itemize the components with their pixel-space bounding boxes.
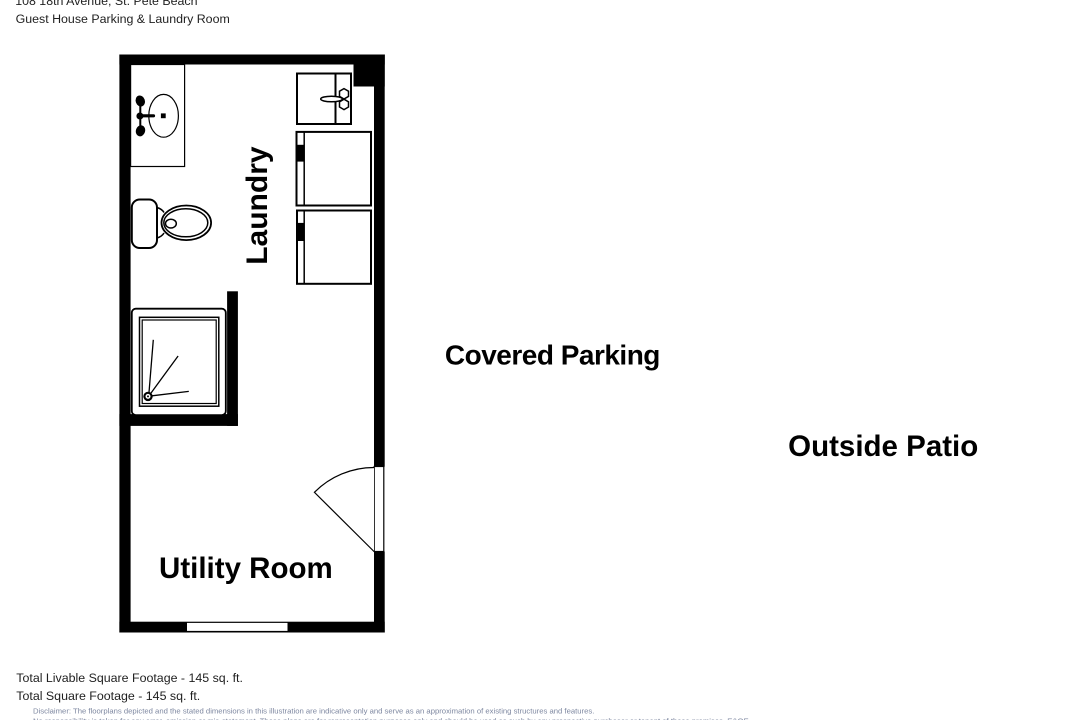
svg-text:Guest House Parking & Laundry: Guest House Parking & Laundry Room [16,12,230,26]
svg-text:Utility Room: Utility Room [159,552,333,585]
svg-text:Disclaimer: The floorplans dep: Disclaimer: The floorplans depicted and … [33,706,594,715]
svg-text:Laundry: Laundry [241,146,274,265]
svg-text:No responsibility is taken for: No responsibility is taken for any error… [33,716,749,720]
svg-text:Outside Patio: Outside Patio [788,430,978,463]
svg-text:108 18th Avenue, St. Pete Beac: 108 18th Avenue, St. Pete Beach [15,0,197,8]
svg-text:Total Livable Square Footage -: Total Livable Square Footage - 145 sq. f… [16,671,243,685]
svg-text:Total Square Footage - 145 sq.: Total Square Footage - 145 sq. ft. [16,689,200,703]
svg-text:Covered Parking: Covered Parking [445,339,660,370]
